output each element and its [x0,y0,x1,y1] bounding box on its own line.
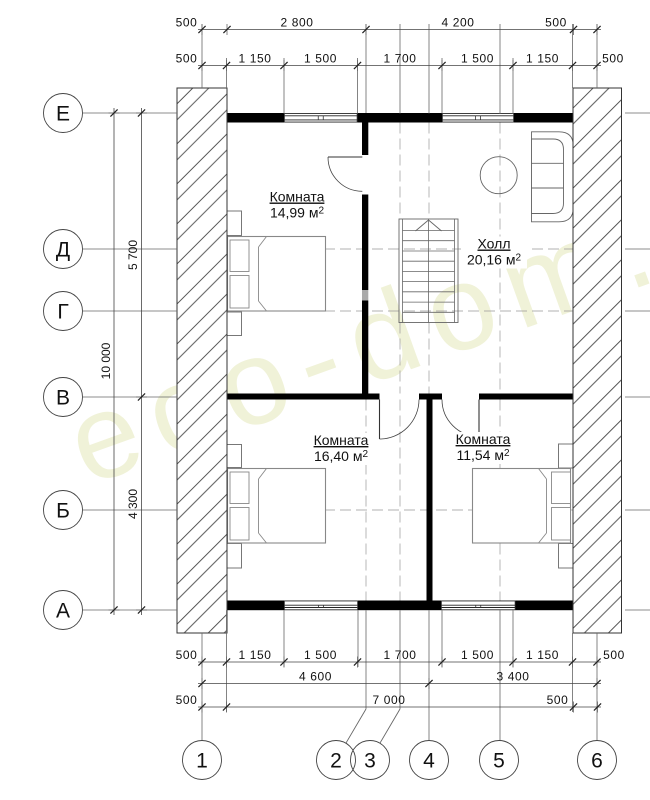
svg-text:Д: Д [56,239,70,262]
svg-text:4: 4 [423,750,435,773]
svg-text:2: 2 [330,750,342,773]
svg-text:10 000: 10 000 [99,342,113,379]
svg-text:1 700: 1 700 [383,52,416,66]
svg-text:500: 500 [603,648,625,662]
svg-text:5: 5 [493,750,505,773]
svg-text:1 150: 1 150 [526,52,559,66]
svg-text:1 500: 1 500 [304,52,337,66]
svg-text:1 500: 1 500 [304,648,337,662]
svg-text:5 700: 5 700 [126,240,140,270]
svg-text:500: 500 [602,52,624,66]
svg-text:Г: Г [57,301,68,324]
svg-text:1: 1 [196,750,208,773]
svg-text:500: 500 [176,52,198,66]
svg-text:В: В [56,387,70,410]
svg-text:1 150: 1 150 [238,52,271,66]
svg-text:16,40 м2: 16,40 м2 [314,448,369,464]
svg-text:1 150: 1 150 [238,648,271,662]
svg-text:1 700: 1 700 [383,648,416,662]
svg-text:14,99 м2: 14,99 м2 [270,205,325,221]
svg-text:1 500: 1 500 [461,648,494,662]
svg-text:500: 500 [176,648,198,662]
svg-text:Б: Б [56,500,70,523]
svg-text:Холл: Холл [478,236,511,252]
svg-text:Комната: Комната [270,189,325,205]
svg-text:2 800: 2 800 [280,16,313,30]
svg-text:Е: Е [56,103,70,126]
svg-text:1 500: 1 500 [461,52,494,66]
svg-text:500: 500 [545,16,567,30]
svg-text:3: 3 [364,750,376,773]
svg-text:6: 6 [591,750,603,773]
svg-text:500: 500 [176,693,198,707]
svg-text:4 600: 4 600 [299,670,332,684]
svg-text:500: 500 [547,693,569,707]
svg-text:4 300: 4 300 [126,489,140,519]
svg-text:20,16 м2: 20,16 м2 [467,252,522,268]
svg-text:500: 500 [176,16,198,30]
svg-text:3 400: 3 400 [496,670,529,684]
svg-text:А: А [56,600,70,623]
svg-text:Комната: Комната [456,431,511,447]
svg-text:1 150: 1 150 [526,648,559,662]
svg-text:4 200: 4 200 [441,16,474,30]
svg-text:7 000: 7 000 [372,693,405,707]
svg-text:Комната: Комната [314,432,369,448]
svg-text:11,54 м2: 11,54 м2 [456,447,510,463]
